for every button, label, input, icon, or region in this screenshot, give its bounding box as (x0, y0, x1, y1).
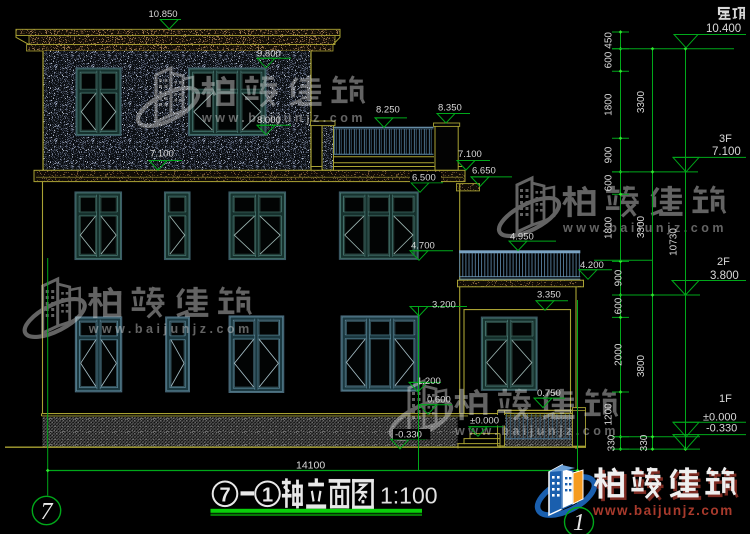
svg-text:6.650: 6.650 (472, 166, 496, 177)
svg-text:3.200: 3.200 (432, 300, 456, 311)
svg-text:1800: 1800 (604, 216, 615, 239)
svg-text:600: 600 (604, 174, 615, 191)
svg-text:330: 330 (639, 434, 650, 451)
svg-text:4.700: 4.700 (411, 241, 435, 252)
svg-text:900: 900 (614, 269, 625, 286)
svg-text:14100: 14100 (296, 460, 325, 472)
svg-text:600: 600 (614, 297, 625, 314)
svg-text:4.200: 4.200 (580, 260, 604, 271)
svg-text:330: 330 (607, 434, 618, 451)
svg-text:6.500: 6.500 (412, 173, 436, 184)
svg-text:3300: 3300 (636, 215, 647, 238)
svg-text:900: 900 (604, 146, 615, 163)
svg-text:1:100: 1:100 (380, 483, 438, 509)
svg-text:7.100: 7.100 (712, 146, 741, 158)
svg-text:9.800: 9.800 (257, 49, 281, 60)
svg-text:4.950: 4.950 (510, 232, 534, 243)
svg-text:www.baijunjz.com: www.baijunjz.com (592, 503, 733, 518)
svg-text:7: 7 (219, 485, 230, 507)
svg-text:0.600: 0.600 (427, 395, 451, 406)
svg-text:-0.330: -0.330 (706, 423, 737, 435)
svg-text:7: 7 (41, 499, 54, 525)
svg-text:8.000: 8.000 (257, 115, 281, 126)
svg-text:10730: 10730 (669, 228, 680, 256)
svg-text:1: 1 (262, 485, 273, 507)
svg-text:0.750: 0.750 (537, 388, 561, 399)
svg-text:-0.330: -0.330 (395, 430, 422, 441)
svg-text:1800: 1800 (604, 93, 615, 116)
svg-text:10.400: 10.400 (706, 23, 741, 35)
svg-text:1.200: 1.200 (417, 376, 441, 387)
svg-text:1200: 1200 (604, 403, 615, 426)
svg-text:450: 450 (604, 32, 615, 49)
svg-text:7.100: 7.100 (458, 149, 482, 160)
svg-text:2F: 2F (717, 256, 730, 268)
svg-text:10.850: 10.850 (149, 9, 178, 20)
svg-text:3F: 3F (719, 133, 732, 145)
svg-text:8.250: 8.250 (376, 105, 400, 116)
svg-text:1F: 1F (719, 393, 732, 405)
svg-text:600: 600 (604, 51, 615, 68)
svg-text:3300: 3300 (636, 90, 647, 113)
svg-text:1: 1 (573, 510, 585, 534)
svg-text:3.350: 3.350 (537, 290, 561, 301)
svg-text:8.350: 8.350 (438, 103, 462, 114)
svg-text:2000: 2000 (614, 343, 625, 366)
svg-text:±0.000: ±0.000 (470, 416, 499, 427)
svg-text:3800: 3800 (636, 354, 647, 377)
svg-text:7.100: 7.100 (150, 149, 174, 160)
